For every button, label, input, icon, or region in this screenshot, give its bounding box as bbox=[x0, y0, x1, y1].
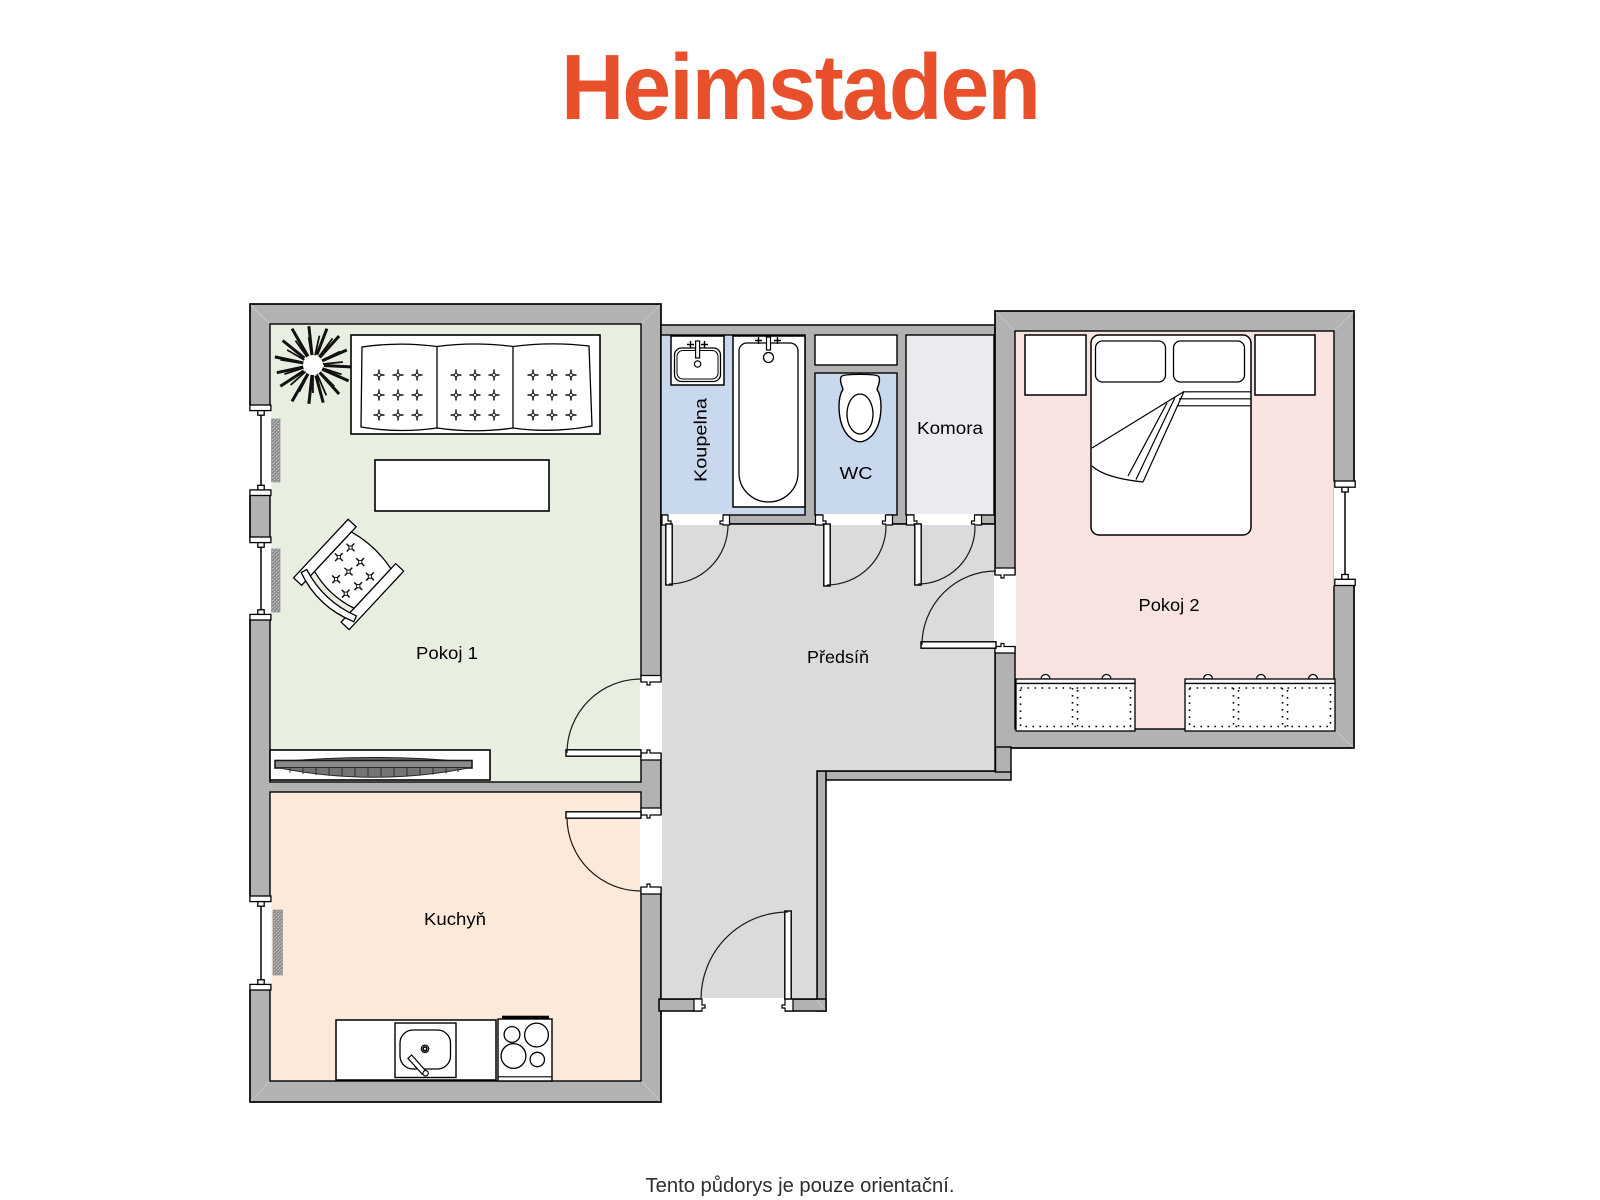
svg-text:Pokoj 2: Pokoj 2 bbox=[1139, 595, 1200, 615]
svg-text:Koupelna: Koupelna bbox=[691, 398, 711, 482]
svg-text:Komora: Komora bbox=[917, 418, 983, 438]
svg-text:Kuchyň: Kuchyň bbox=[424, 909, 486, 929]
svg-text:Tento půdorys je pouze orienta: Tento půdorys je pouze orientační. bbox=[646, 1175, 955, 1197]
svg-text:Pokoj 1: Pokoj 1 bbox=[416, 643, 478, 663]
svg-text:Heimstaden: Heimstaden bbox=[561, 35, 1039, 139]
svg-text:WC: WC bbox=[840, 463, 873, 483]
svg-text:Předsíň: Předsíň bbox=[807, 647, 869, 667]
